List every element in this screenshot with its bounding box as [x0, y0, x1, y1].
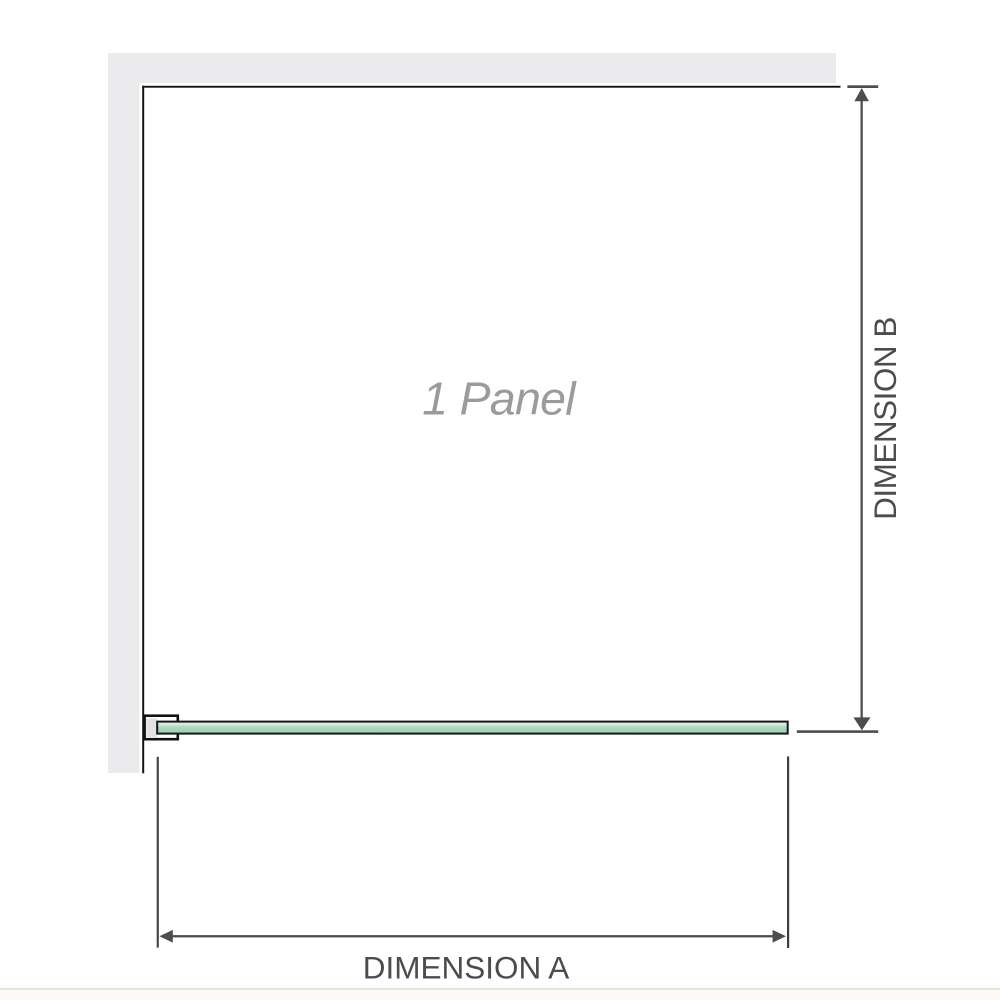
svg-text:DIMENSION B: DIMENSION B	[867, 317, 903, 520]
svg-text:1 Panel: 1 Panel	[422, 373, 577, 425]
svg-text:DIMENSION A: DIMENSION A	[363, 950, 570, 986]
